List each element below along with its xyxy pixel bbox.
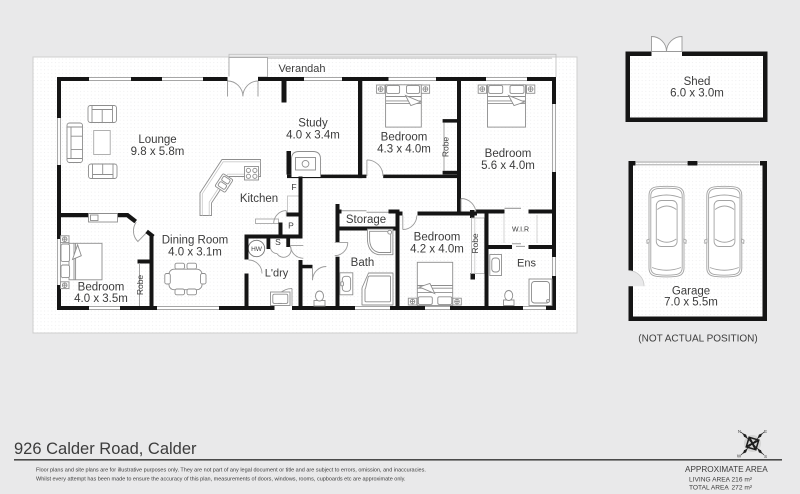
svg-text:LIVING AREA: LIVING AREA xyxy=(689,477,731,484)
svg-text:Ens: Ens xyxy=(517,258,536,270)
svg-text:(NOT ACTUAL POSITION): (NOT ACTUAL POSITION) xyxy=(638,334,757,345)
svg-text:4.0 x 3.5m: 4.0 x 3.5m xyxy=(74,293,128,305)
svg-text:Floor plans and site plans are: Floor plans and site plans are for illus… xyxy=(36,468,426,474)
svg-text:Bedroom: Bedroom xyxy=(381,132,428,144)
svg-text:N: N xyxy=(738,429,741,434)
svg-text:5.6 x 4.0m: 5.6 x 4.0m xyxy=(481,160,535,172)
svg-text:E: E xyxy=(764,429,767,434)
svg-text:4.3 x 4.0m: 4.3 x 4.0m xyxy=(377,144,431,156)
svg-text:Bath: Bath xyxy=(351,257,375,269)
svg-text:S: S xyxy=(275,237,281,247)
svg-text:7.0 x 5.5m: 7.0 x 5.5m xyxy=(664,297,718,309)
svg-text:4.0 x 3.4m: 4.0 x 3.4m xyxy=(286,130,340,142)
svg-text:Robe: Robe xyxy=(135,275,145,296)
svg-text:926 Calder Road, Calder: 926 Calder Road, Calder xyxy=(14,440,197,458)
svg-text:Bedroom: Bedroom xyxy=(78,282,125,294)
svg-text:Dining Room: Dining Room xyxy=(162,235,228,247)
svg-text:Kitchen: Kitchen xyxy=(240,193,278,205)
svg-text:W.I.R: W.I.R xyxy=(512,227,529,234)
svg-text:F: F xyxy=(291,182,296,192)
svg-text:Bedroom: Bedroom xyxy=(414,232,461,244)
svg-text:Bedroom: Bedroom xyxy=(485,148,532,160)
svg-text:Robe: Robe xyxy=(441,137,451,158)
svg-text::: : xyxy=(726,477,728,484)
svg-text:Verandah: Verandah xyxy=(278,63,325,75)
svg-text:APPROXIMATE AREA: APPROXIMATE AREA xyxy=(685,465,768,474)
svg-text:6.0 x 3.0m: 6.0 x 3.0m xyxy=(670,88,724,100)
svg-text:S: S xyxy=(764,454,767,459)
svg-text:9.8 x 5.8m: 9.8 x 5.8m xyxy=(131,146,185,158)
svg-text:Shed: Shed xyxy=(684,76,711,88)
svg-text:L'dry: L'dry xyxy=(265,268,289,280)
svg-text:Robe: Robe xyxy=(470,233,480,254)
svg-text:HW: HW xyxy=(251,246,263,253)
svg-text:TOTAL AREA: TOTAL AREA xyxy=(689,485,729,492)
svg-text:P: P xyxy=(288,221,294,231)
svg-text:272 m²: 272 m² xyxy=(732,485,753,492)
svg-text:216 m²: 216 m² xyxy=(732,477,753,484)
svg-text:Study: Study xyxy=(298,118,328,130)
svg-text:4.0 x 3.1m: 4.0 x 3.1m xyxy=(168,247,222,259)
svg-text:Whilst every attempt has been: Whilst every attempt has been made to en… xyxy=(36,477,406,483)
svg-text:Lounge: Lounge xyxy=(138,134,176,146)
svg-text:W: W xyxy=(737,454,742,459)
svg-text:Storage: Storage xyxy=(346,214,386,226)
svg-text::: : xyxy=(726,485,728,492)
svg-text:4.2 x 4.0m: 4.2 x 4.0m xyxy=(410,244,464,256)
